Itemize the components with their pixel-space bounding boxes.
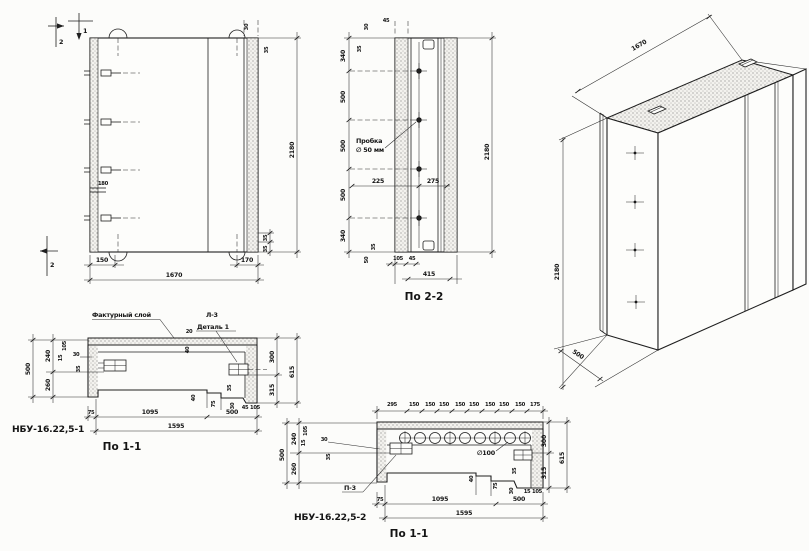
sec11a-dimensions: 500 240 260 105 15 30 35 300 315 615 40 … — [25, 333, 301, 435]
edge-rib-strip — [247, 38, 258, 252]
dim-label: 150 — [439, 402, 450, 408]
rear-face-strip — [444, 38, 457, 252]
round-holes-row — [399, 431, 531, 445]
dim-label: 15 — [301, 439, 307, 446]
dim-label: 35 — [326, 453, 332, 460]
dim-label: 30 — [509, 487, 515, 494]
dim-label-width: 1670 — [166, 272, 183, 279]
facing-layer-strip — [377, 422, 543, 429]
section-2-2-view: 340 500 500 500 340 2180 225 275 30 35 4… — [340, 18, 496, 303]
dim-label: 45 — [383, 18, 390, 24]
dim-label: 240 — [291, 432, 298, 445]
dim-label: 35 — [263, 245, 269, 252]
part-mark-label: НБУ-16.22,5-1 — [12, 424, 84, 435]
facing-layer-strip — [395, 38, 408, 252]
embedded-plate-left — [390, 443, 412, 454]
dim-label: 75 — [377, 497, 384, 503]
panel-drawing-canvas: 180 2 1 2 150 170 — [0, 0, 809, 551]
isometric-view: 1670 2180 500 — [554, 14, 806, 390]
dim-label: 75 — [493, 482, 499, 489]
detail-ref-l3: Л-3 — [206, 311, 218, 319]
dim-label: 340 — [340, 229, 347, 242]
plug-note-line2: ∅ 50 мм — [356, 146, 384, 154]
dim-label-width: 1670 — [630, 38, 648, 53]
section-1-1-a-view: Фактурный слой Л-3 Деталь 1 20 40 500 24… — [12, 311, 301, 453]
dim-label: 105 — [532, 489, 543, 495]
dim-label: 1095 — [432, 496, 448, 503]
dim-label: 35 — [512, 467, 518, 474]
dim-label: 35 — [357, 45, 363, 52]
dim-label: 500 — [279, 448, 286, 461]
dim-label-height: 2180 — [289, 141, 296, 158]
section-1-1-title: По 1-1 — [103, 441, 142, 453]
dim-label: 300 — [269, 350, 276, 363]
hole-diameter-note: ∅100 — [477, 449, 496, 457]
facing-layer-note: Фактурный слой — [92, 311, 151, 319]
blueprint-page: 180 2 1 2 150 170 — [0, 0, 809, 551]
section-1-1-title: По 1-1 — [390, 528, 429, 540]
section-markers: 2 1 2 — [40, 13, 93, 276]
dim-label: 150 — [96, 257, 109, 264]
cut-marker-2: 2 — [59, 38, 63, 46]
dim-label: 150 — [515, 402, 526, 408]
dim-label: 75 — [211, 400, 217, 407]
dim-label: 150 — [425, 402, 436, 408]
dim-label: 35 — [76, 365, 82, 372]
dim-label: 260 — [291, 462, 298, 475]
dim-label-total: 1595 — [168, 423, 184, 430]
dim-label: 40 — [185, 346, 191, 353]
facing-layer-strip — [90, 38, 98, 252]
dim-label-height: 2180 — [484, 143, 491, 160]
dim-label: 500 — [340, 188, 347, 201]
cut-marker-1: 1 — [83, 27, 87, 35]
dim-label: 35 — [263, 234, 269, 241]
dim-label: 30 — [73, 352, 80, 358]
dim-label: 45 — [409, 256, 416, 262]
dim-label: 50 — [364, 256, 370, 263]
embedded-plate-right — [229, 364, 267, 375]
dim-label: 35 — [371, 243, 377, 250]
sec11b-dimensions: 295 150 150 150 150 150 150 150 150 175 … — [279, 402, 571, 522]
dim-label: 105 — [393, 256, 404, 262]
dim-label: 300 — [541, 434, 548, 447]
dim-label: 295 — [387, 402, 398, 408]
dim-label: 35 — [264, 46, 270, 53]
embedded-plate-right — [514, 450, 532, 460]
dim-label: 105 — [303, 425, 309, 436]
dim-label: 45 — [242, 405, 249, 411]
dim-label-anchor: 180 — [98, 181, 109, 187]
dim-label: 225 — [372, 178, 384, 185]
section-1-1-b-view: ∅100 П-3 295 150 150 150 150 150 150 150… — [279, 402, 571, 540]
dim-label: 150 — [485, 402, 496, 408]
dim-label-width: 415 — [423, 271, 435, 278]
dim-label-total: 1595 — [456, 510, 472, 517]
dim-label: 105 — [62, 340, 68, 351]
dim-label: 150 — [455, 402, 466, 408]
dim-label: 275 — [427, 178, 439, 185]
dim-label: 500 — [25, 362, 32, 375]
dim-label: 240 — [45, 349, 52, 362]
detail-ref: Деталь 1 — [197, 323, 229, 331]
dim-label: 340 — [340, 49, 347, 62]
front-elevation-view: 180 2 1 2 150 170 — [40, 13, 301, 284]
dim-label: 150 — [499, 402, 510, 408]
dim-label-height: 2180 — [554, 263, 561, 280]
dim-label: 20 — [186, 329, 193, 335]
panel-outline — [90, 38, 258, 252]
dim-label: 150 — [469, 402, 480, 408]
sec11b-notes: ∅100 П-3 — [342, 442, 508, 492]
left-rib — [600, 113, 607, 335]
dim-label: 500 — [340, 90, 347, 103]
part-mark-label: НБУ-16.22,5-2 — [294, 512, 366, 523]
section-2-2-title: По 2-2 — [405, 291, 444, 303]
dim-label: 170 — [241, 257, 254, 264]
dim-label: 1095 — [142, 409, 158, 416]
dim-label: 615 — [289, 366, 296, 378]
dim-label: 75 — [88, 410, 95, 416]
detail-ref-p3: П-3 — [344, 484, 356, 492]
dim-label: 15 — [524, 489, 531, 495]
left-flange-fill — [89, 346, 98, 396]
dim-label: 35 — [227, 384, 233, 391]
dim-label: 615 — [559, 452, 566, 464]
dim-label: 260 — [45, 378, 52, 391]
embedded-plate-left — [98, 360, 126, 371]
dim-label: 175 — [530, 402, 541, 408]
dim-label: 500 — [340, 139, 347, 152]
dim-label: 315 — [541, 467, 548, 479]
dim-label: 40 — [469, 475, 475, 482]
dim-label: 105 — [250, 405, 261, 411]
dim-label: 315 — [269, 384, 276, 396]
right-rib-face — [793, 69, 806, 290]
dim-label: 500 — [513, 496, 526, 503]
dim-label: 40 — [191, 394, 197, 401]
dim-label: 500 — [226, 409, 239, 416]
dim-label: 30 — [244, 23, 250, 30]
facing-layer-strip — [88, 338, 257, 345]
dim-label: 150 — [409, 402, 420, 408]
cut-marker-2-bottom: 2 — [50, 261, 54, 269]
dim-label: 15 — [58, 354, 64, 361]
dim-label: 30 — [364, 23, 370, 30]
dim-label: 30 — [321, 437, 328, 443]
sec11a-notes: Фактурный слой Л-3 Деталь 1 20 40 — [92, 311, 237, 362]
plug-note-line1: Пробка — [356, 137, 382, 145]
